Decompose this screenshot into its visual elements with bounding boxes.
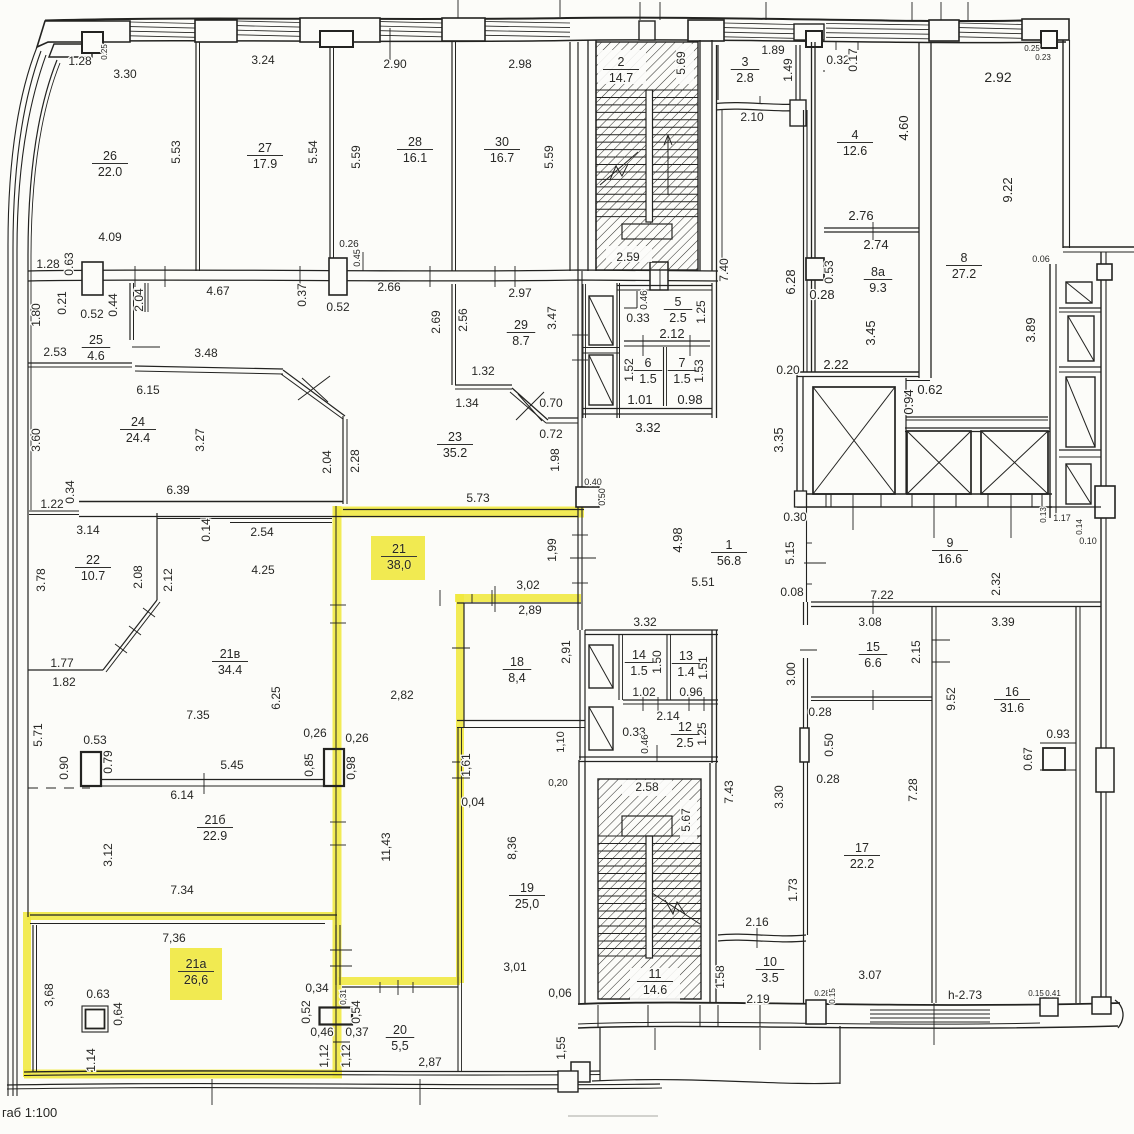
svg-text:0,34: 0,34 (305, 981, 329, 995)
svg-text:1,61: 1,61 (459, 753, 473, 777)
svg-text:1.25: 1.25 (694, 300, 708, 324)
svg-text:2.8: 2.8 (736, 71, 753, 85)
svg-text:0.45: 0.45 (352, 249, 362, 267)
svg-text:2,82: 2,82 (390, 688, 414, 702)
svg-text:2.69: 2.69 (429, 310, 443, 334)
svg-text:12.6: 12.6 (843, 144, 867, 158)
svg-text:56.8: 56.8 (717, 554, 741, 568)
svg-text:14.7: 14.7 (609, 71, 633, 85)
svg-text:1.51: 1.51 (696, 656, 710, 680)
svg-text:3.07: 3.07 (858, 968, 882, 982)
svg-text:25,0: 25,0 (515, 897, 539, 911)
svg-text:0.96: 0.96 (679, 685, 703, 699)
svg-text:12: 12 (678, 720, 692, 734)
svg-text:h-2.73: h-2.73 (948, 988, 982, 1002)
svg-text:1.01: 1.01 (627, 392, 652, 407)
svg-text:3.45: 3.45 (863, 320, 878, 345)
svg-text:7: 7 (679, 356, 686, 370)
svg-text:8а: 8а (871, 265, 885, 279)
svg-text:0,46: 0,46 (310, 1025, 334, 1039)
svg-text:0.52: 0.52 (326, 300, 350, 314)
svg-text:0.41: 0.41 (1045, 989, 1061, 998)
svg-text:3.27: 3.27 (193, 428, 207, 452)
svg-text:0.44: 0.44 (106, 293, 120, 317)
svg-text:21: 21 (392, 542, 406, 556)
svg-text:0.37: 0.37 (295, 283, 309, 307)
svg-text:3.08: 3.08 (858, 615, 882, 629)
svg-text:5.54: 5.54 (306, 140, 320, 164)
svg-text:0.79: 0.79 (101, 750, 115, 774)
svg-text:5.53: 5.53 (169, 140, 183, 164)
svg-text:1.5: 1.5 (673, 372, 690, 386)
svg-text:0.17: 0.17 (846, 48, 860, 72)
svg-text:19: 19 (520, 881, 534, 895)
svg-text:0.67: 0.67 (1021, 747, 1035, 771)
svg-text:0.50: 0.50 (597, 488, 607, 506)
svg-text:0.20: 0.20 (776, 363, 800, 377)
svg-text:2,91: 2,91 (559, 640, 573, 664)
svg-text:2.76: 2.76 (848, 208, 873, 223)
svg-text:8: 8 (961, 251, 968, 265)
svg-text:1,12: 1,12 (339, 1044, 353, 1068)
svg-text:8,4: 8,4 (508, 671, 525, 685)
svg-text:6.39: 6.39 (166, 483, 190, 497)
svg-text:2.32: 2.32 (989, 572, 1003, 596)
svg-text:1.89: 1.89 (761, 43, 785, 57)
svg-text:2.5: 2.5 (669, 311, 686, 325)
svg-text:0.63: 0.63 (86, 987, 110, 1001)
svg-text:3.32: 3.32 (633, 615, 657, 629)
svg-text:9.52: 9.52 (944, 687, 958, 711)
svg-text:2.22: 2.22 (823, 357, 848, 372)
svg-text:0.28: 0.28 (816, 772, 840, 786)
svg-text:26: 26 (103, 149, 117, 163)
svg-text:5.69: 5.69 (674, 51, 688, 75)
svg-text:3.12: 3.12 (101, 843, 115, 867)
svg-text:20: 20 (393, 1023, 407, 1037)
svg-text:0.15: 0.15 (1028, 989, 1044, 998)
svg-text:3.35: 3.35 (771, 427, 786, 452)
svg-text:2.12: 2.12 (161, 568, 175, 592)
svg-text:0,98: 0,98 (344, 756, 358, 780)
svg-text:1,12: 1,12 (317, 1044, 331, 1068)
svg-text:6: 6 (645, 356, 652, 370)
svg-text:1.17: 1.17 (1053, 513, 1071, 523)
svg-text:0.28: 0.28 (808, 705, 832, 719)
svg-text:0.13: 0.13 (1039, 507, 1048, 523)
svg-text:5.59: 5.59 (542, 145, 556, 169)
svg-text:1.49: 1.49 (781, 58, 795, 82)
svg-text:2.92: 2.92 (984, 69, 1011, 85)
svg-text:30: 30 (495, 135, 509, 149)
svg-text:0,26: 0,26 (303, 726, 327, 740)
svg-text:7.43: 7.43 (722, 780, 736, 804)
svg-text:6.14: 6.14 (170, 788, 194, 802)
svg-text:0.28: 0.28 (809, 287, 834, 302)
svg-text:3.30: 3.30 (113, 67, 137, 81)
svg-text:11,43: 11,43 (379, 832, 393, 861)
svg-text:16.6: 16.6 (938, 552, 962, 566)
svg-text:2.10: 2.10 (740, 110, 764, 124)
svg-text:16: 16 (1005, 685, 1019, 699)
svg-text:2.04: 2.04 (320, 450, 334, 474)
svg-text:0.53: 0.53 (822, 260, 836, 284)
svg-text:1.52: 1.52 (622, 358, 636, 382)
svg-text:1.73: 1.73 (786, 878, 800, 902)
svg-text:0.52: 0.52 (80, 307, 104, 321)
svg-text:28: 28 (408, 135, 422, 149)
svg-text:0.72: 0.72 (539, 427, 563, 441)
svg-text:1.58: 1.58 (713, 965, 727, 989)
svg-text:31.6: 31.6 (1000, 701, 1024, 715)
svg-text:0.21: 0.21 (55, 291, 69, 315)
svg-text:15: 15 (866, 640, 880, 654)
svg-text:7.28: 7.28 (906, 778, 920, 802)
svg-text:2.14: 2.14 (656, 709, 680, 723)
svg-text:26,6: 26,6 (184, 973, 208, 987)
svg-text:22: 22 (86, 553, 100, 567)
svg-text:0.10: 0.10 (1079, 536, 1097, 546)
svg-text:2.08: 2.08 (131, 565, 145, 589)
svg-text:3: 3 (742, 55, 749, 69)
svg-text:1,99: 1,99 (545, 538, 559, 562)
svg-text:17: 17 (855, 841, 869, 855)
svg-text:16.7: 16.7 (490, 151, 514, 165)
svg-text:9: 9 (947, 536, 954, 550)
svg-text:5: 5 (675, 295, 682, 309)
svg-text:3.39: 3.39 (991, 615, 1015, 629)
svg-text:2.90: 2.90 (383, 57, 407, 71)
svg-text:2.12: 2.12 (659, 326, 684, 341)
svg-text:5.71: 5.71 (31, 723, 45, 747)
svg-text:22.9: 22.9 (203, 829, 227, 843)
svg-text:0.46: 0.46 (640, 734, 651, 754)
svg-text:6.6: 6.6 (864, 656, 881, 670)
svg-text:2.98: 2.98 (508, 57, 532, 71)
svg-text:4.98: 4.98 (670, 527, 685, 552)
svg-text:2.54: 2.54 (250, 525, 274, 539)
svg-text:7.34: 7.34 (170, 883, 194, 897)
svg-text:8,36: 8,36 (505, 836, 519, 860)
svg-text:5.73: 5.73 (466, 491, 490, 505)
svg-text:18: 18 (510, 655, 524, 669)
svg-text:2.15: 2.15 (909, 640, 923, 664)
svg-text:17.9: 17.9 (253, 157, 277, 171)
svg-text:3.78: 3.78 (34, 568, 48, 592)
svg-text:0.90: 0.90 (57, 756, 71, 780)
svg-text:1.5: 1.5 (630, 664, 647, 678)
svg-text:3.60: 3.60 (29, 428, 43, 452)
svg-text:0,54: 0,54 (349, 1000, 363, 1024)
svg-text:3.30: 3.30 (772, 785, 786, 809)
svg-text:0.53: 0.53 (83, 733, 107, 747)
svg-text:11: 11 (649, 967, 662, 981)
svg-text:1.32: 1.32 (471, 364, 495, 378)
svg-text:0.25: 0.25 (1024, 44, 1040, 53)
svg-text:1,55: 1,55 (554, 1036, 568, 1060)
svg-text:0.50: 0.50 (822, 733, 836, 757)
svg-text:0,04: 0,04 (461, 795, 485, 809)
svg-text:0.62: 0.62 (917, 382, 942, 397)
svg-text:0.70: 0.70 (539, 396, 563, 410)
svg-text:7.40: 7.40 (717, 258, 731, 282)
svg-text:2: 2 (618, 55, 625, 69)
svg-text:35.2: 35.2 (443, 446, 467, 460)
svg-text:23: 23 (448, 430, 462, 444)
svg-text:3.00: 3.00 (784, 662, 798, 686)
svg-text:1: 1 (726, 538, 733, 552)
svg-text:2.59: 2.59 (616, 250, 640, 264)
svg-text:9.22: 9.22 (1000, 177, 1015, 202)
svg-text:0,52: 0,52 (299, 1000, 313, 1024)
svg-text:0.98: 0.98 (677, 392, 702, 407)
svg-text:1.14: 1.14 (84, 1048, 98, 1072)
svg-text:1.80: 1.80 (29, 303, 43, 327)
svg-text:1.28: 1.28 (36, 257, 60, 271)
svg-text:0,31: 0,31 (339, 989, 348, 1005)
svg-text:2.66: 2.66 (377, 280, 401, 294)
svg-text:1,10: 1,10 (555, 731, 567, 752)
svg-text:6.25: 6.25 (269, 686, 283, 710)
svg-text:29: 29 (514, 318, 528, 332)
svg-text:3,68: 3,68 (42, 983, 56, 1007)
svg-text:5.59: 5.59 (349, 145, 363, 169)
svg-text:4.09: 4.09 (98, 230, 122, 244)
svg-text:5.67: 5.67 (679, 808, 693, 832)
svg-text:0.34: 0.34 (63, 480, 77, 504)
svg-text:6.28: 6.28 (783, 269, 798, 294)
svg-text:2.04: 2.04 (132, 288, 146, 312)
svg-text:2.5: 2.5 (676, 736, 693, 750)
svg-text:6.15: 6.15 (136, 383, 160, 397)
svg-text:0.25: 0.25 (100, 44, 109, 60)
svg-text:1.22: 1.22 (40, 497, 64, 511)
svg-text:24.4: 24.4 (126, 431, 150, 445)
svg-text:0.63: 0.63 (62, 252, 76, 276)
svg-text:0.94: 0.94 (901, 389, 916, 414)
svg-text:2.58: 2.58 (635, 780, 659, 794)
svg-text:22.0: 22.0 (98, 165, 122, 179)
svg-text:7,36: 7,36 (162, 931, 186, 945)
svg-text:1.98: 1.98 (548, 448, 562, 472)
svg-text:0.15: 0.15 (828, 988, 837, 1004)
svg-text:0.14: 0.14 (199, 518, 213, 542)
svg-text:0,37: 0,37 (345, 1025, 369, 1039)
svg-text:14: 14 (632, 648, 646, 662)
svg-text:0.40: 0.40 (584, 477, 602, 487)
svg-text:5,5: 5,5 (391, 1039, 408, 1053)
svg-text:1.02: 1.02 (632, 685, 656, 699)
svg-text:1.50: 1.50 (650, 650, 664, 674)
svg-text:2.97: 2.97 (508, 286, 532, 300)
svg-text:3.14: 3.14 (76, 523, 100, 537)
svg-text:1.77: 1.77 (50, 656, 74, 670)
svg-text:3.32: 3.32 (635, 420, 660, 435)
svg-text:7.22: 7.22 (870, 588, 894, 602)
svg-text:5.45: 5.45 (220, 758, 244, 772)
svg-text:38,0: 38,0 (387, 558, 411, 572)
svg-text:4.60: 4.60 (896, 115, 911, 140)
svg-text:1.82: 1.82 (52, 675, 76, 689)
svg-text:7.35: 7.35 (186, 708, 210, 722)
svg-text:4.6: 4.6 (87, 349, 104, 363)
svg-text:2.56: 2.56 (456, 308, 470, 332)
svg-text:25: 25 (89, 333, 103, 347)
svg-text:3.48: 3.48 (194, 346, 218, 360)
svg-text:4.67: 4.67 (206, 284, 230, 298)
svg-text:0.23: 0.23 (1035, 53, 1051, 62)
svg-text:2.74: 2.74 (863, 237, 888, 252)
svg-text:3.5: 3.5 (761, 971, 778, 985)
svg-text:0.08: 0.08 (780, 585, 804, 599)
svg-text:13: 13 (679, 649, 693, 663)
svg-text:10: 10 (763, 955, 777, 969)
svg-text:8.7: 8.7 (512, 334, 529, 348)
svg-text:2.28: 2.28 (348, 449, 362, 473)
svg-text:0.06: 0.06 (1032, 254, 1050, 264)
svg-text:0.93: 0.93 (1046, 727, 1070, 741)
svg-text:0.26: 0.26 (339, 239, 359, 250)
svg-text:0,26: 0,26 (345, 731, 369, 745)
svg-text:27.2: 27.2 (952, 267, 976, 281)
svg-text:2.19: 2.19 (746, 992, 770, 1006)
svg-text:2.16: 2.16 (745, 915, 769, 929)
svg-text:3.89: 3.89 (1023, 317, 1038, 342)
svg-text:0,64: 0,64 (111, 1002, 125, 1026)
svg-text:2.53: 2.53 (43, 345, 67, 359)
svg-text:0.46: 0.46 (639, 290, 650, 310)
svg-text:9.3: 9.3 (869, 281, 886, 295)
svg-text:1.25: 1.25 (695, 722, 709, 746)
svg-text:5.15: 5.15 (783, 541, 797, 565)
svg-text:2,87: 2,87 (418, 1055, 442, 1069)
svg-text:1.28: 1.28 (68, 54, 92, 68)
svg-text:34.4: 34.4 (218, 663, 242, 677)
svg-text:1.4: 1.4 (677, 665, 694, 679)
svg-text:14.6: 14.6 (643, 983, 667, 997)
svg-text:0.30: 0.30 (783, 510, 807, 524)
svg-text:0,20: 0,20 (548, 778, 568, 789)
svg-text:0.33: 0.33 (626, 311, 650, 325)
svg-text:0,85: 0,85 (302, 753, 316, 777)
svg-text:5.51: 5.51 (691, 575, 715, 589)
svg-text:2,89: 2,89 (518, 603, 542, 617)
svg-text:21в: 21в (220, 647, 241, 661)
svg-text:0,06: 0,06 (548, 986, 572, 1000)
svg-text:3,01: 3,01 (503, 960, 527, 974)
svg-text:21а: 21а (186, 957, 207, 971)
svg-text:1.34: 1.34 (455, 396, 479, 410)
svg-text:4: 4 (852, 128, 859, 142)
svg-text:1.5: 1.5 (639, 372, 656, 386)
svg-text:3.24: 3.24 (251, 53, 275, 67)
svg-text:21б: 21б (204, 813, 225, 827)
svg-text:3,02: 3,02 (516, 578, 540, 592)
svg-text:3.47: 3.47 (545, 306, 559, 330)
svg-text:16.1: 16.1 (403, 151, 427, 165)
svg-text:27: 27 (258, 141, 272, 155)
svg-text:22.2: 22.2 (850, 857, 874, 871)
svg-text:10.7: 10.7 (81, 569, 105, 583)
svg-text:габ 1:100: габ 1:100 (2, 1105, 57, 1120)
svg-text:0.14: 0.14 (1075, 519, 1084, 535)
svg-text:24: 24 (131, 415, 145, 429)
svg-text:4.25: 4.25 (251, 563, 275, 577)
